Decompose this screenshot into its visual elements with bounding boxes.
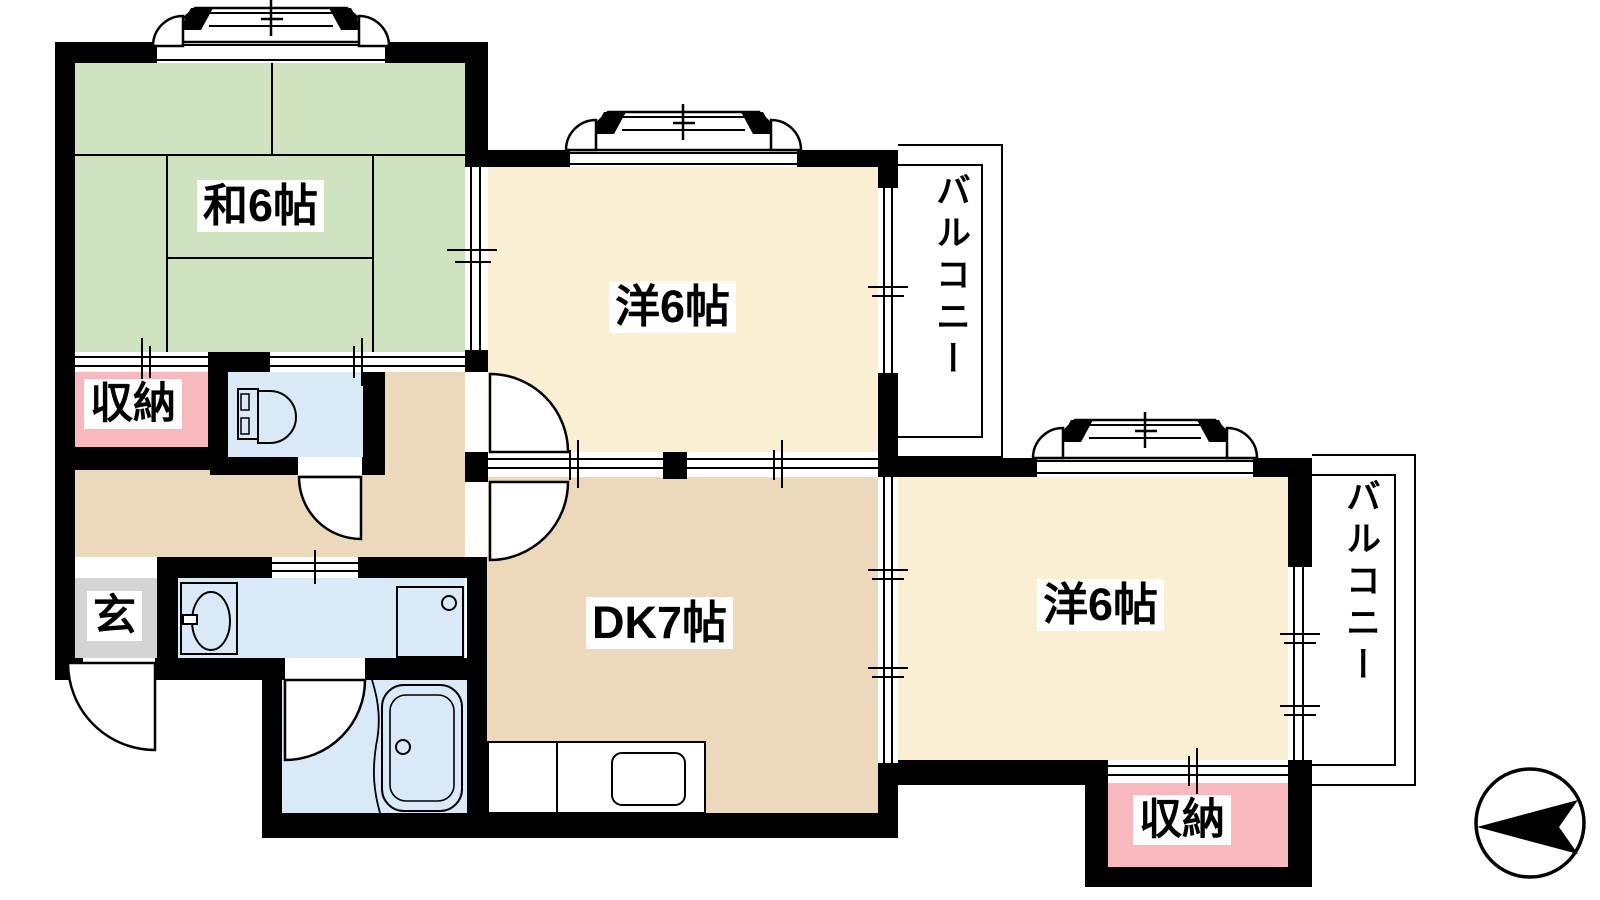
bay-window-japanese-room (153, 0, 389, 63)
dk-door-opening (467, 482, 488, 557)
dining-kitchen-label: DK7帖 (586, 597, 733, 649)
floor-plan-drawing (0, 0, 1600, 900)
bay-window-western-room-right (1033, 412, 1257, 477)
storage-left-label: 収納 (84, 379, 182, 429)
western-room-door-opening (467, 372, 488, 452)
western-room-top-label: 洋6帖 (609, 281, 736, 333)
bath-door-opening (285, 660, 365, 680)
entrance-label: 玄 (87, 591, 142, 641)
balcony-right-label: バルコニー (1335, 478, 1386, 688)
hallway-arm-floor (385, 372, 465, 472)
entrance-step-opening (75, 558, 157, 578)
japanese-room-label: 和6帖 (197, 180, 324, 232)
balcony-top-label: バルコニー (925, 172, 976, 382)
toilet-door-opening (298, 457, 362, 475)
hallway-floor (75, 470, 465, 557)
kitchen-counter-icon (488, 742, 705, 813)
western-room-right-label: 洋6帖 (1037, 579, 1164, 631)
storage-right-label: 収納 (1133, 795, 1231, 845)
bay-window-western-room-top (566, 104, 801, 167)
floor-plan: 和6帖 洋6帖 DK7帖 洋6帖 収納 収納 玄 バルコニー バルコニー (0, 0, 1600, 900)
compass-icon (1476, 769, 1584, 877)
entrance-door-swing (68, 663, 155, 750)
